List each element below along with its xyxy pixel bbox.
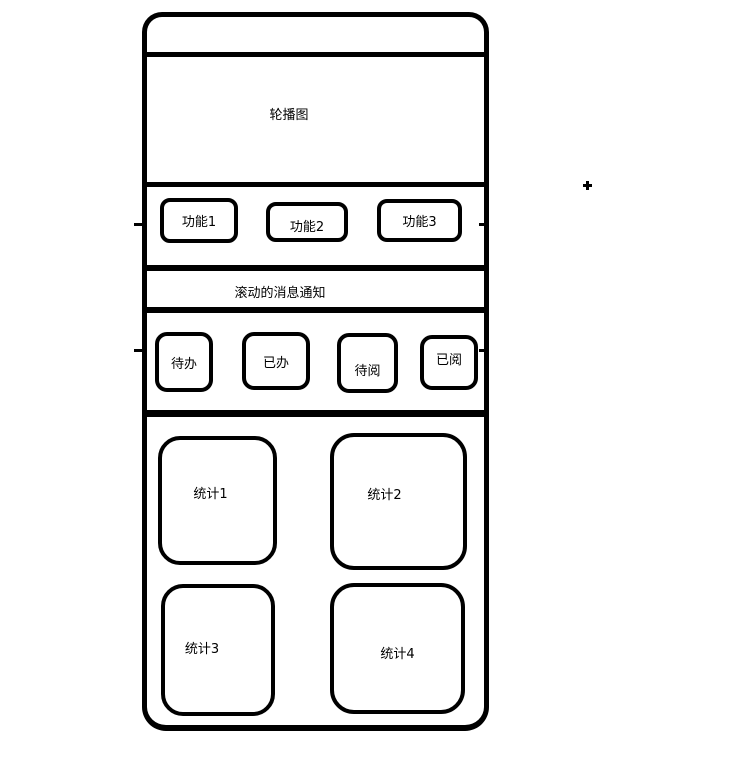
stat-card-3[interactable]: 统计3	[161, 584, 275, 716]
tabs-bottom-divider	[147, 410, 484, 417]
stat-card-4[interactable]: 统计4	[330, 583, 465, 714]
tab-button-todo-label: 待办	[171, 353, 197, 372]
stat-card-2-label: 统计2	[367, 484, 401, 503]
phone-frame: 轮播图 功能1 功能2 功能3 滚动的消息通知 待办 已办 待阅 已阅	[142, 12, 489, 731]
tab-button-to-read-label: 待阅	[354, 360, 380, 379]
stat-card-3-label: 统计3	[185, 638, 219, 657]
function-button-3[interactable]: 功能3	[377, 199, 462, 242]
tab-button-done-label: 已办	[263, 352, 289, 371]
notification-label: 滚动的消息通知	[210, 285, 350, 303]
stat-card-1-label: 统计1	[193, 483, 227, 502]
notification-bottom-divider	[147, 307, 484, 313]
tab-button-read[interactable]: 已阅	[420, 335, 478, 390]
stray-plus-vertical	[586, 181, 589, 190]
function-button-2-label: 功能2	[290, 216, 324, 235]
function-button-1-label: 功能1	[182, 211, 216, 230]
tab-button-todo[interactable]: 待办	[155, 332, 213, 392]
wireframe-canvas: 轮播图 功能1 功能2 功能3 滚动的消息通知 待办 已办 待阅 已阅	[0, 0, 739, 768]
carousel-bottom-divider	[147, 182, 484, 187]
function-button-2[interactable]: 功能2	[266, 202, 348, 242]
function-button-1[interactable]: 功能1	[160, 198, 238, 243]
stray-plus-mark	[583, 181, 592, 190]
connector-tick-right-functions	[479, 223, 486, 226]
tab-button-done[interactable]: 已办	[242, 332, 310, 390]
tab-button-to-read[interactable]: 待阅	[337, 333, 398, 393]
stat-card-1[interactable]: 统计1	[158, 436, 277, 565]
connector-tick-left-functions	[134, 223, 143, 226]
tab-button-read-label: 已阅	[436, 349, 462, 368]
stat-card-4-label: 统计4	[380, 643, 414, 662]
stat-card-2[interactable]: 统计2	[330, 433, 467, 570]
function-button-3-label: 功能3	[402, 211, 436, 230]
carousel-label: 轮播图	[239, 107, 339, 125]
connector-tick-right-tabs	[479, 349, 486, 352]
connector-tick-left-tabs	[134, 349, 143, 352]
